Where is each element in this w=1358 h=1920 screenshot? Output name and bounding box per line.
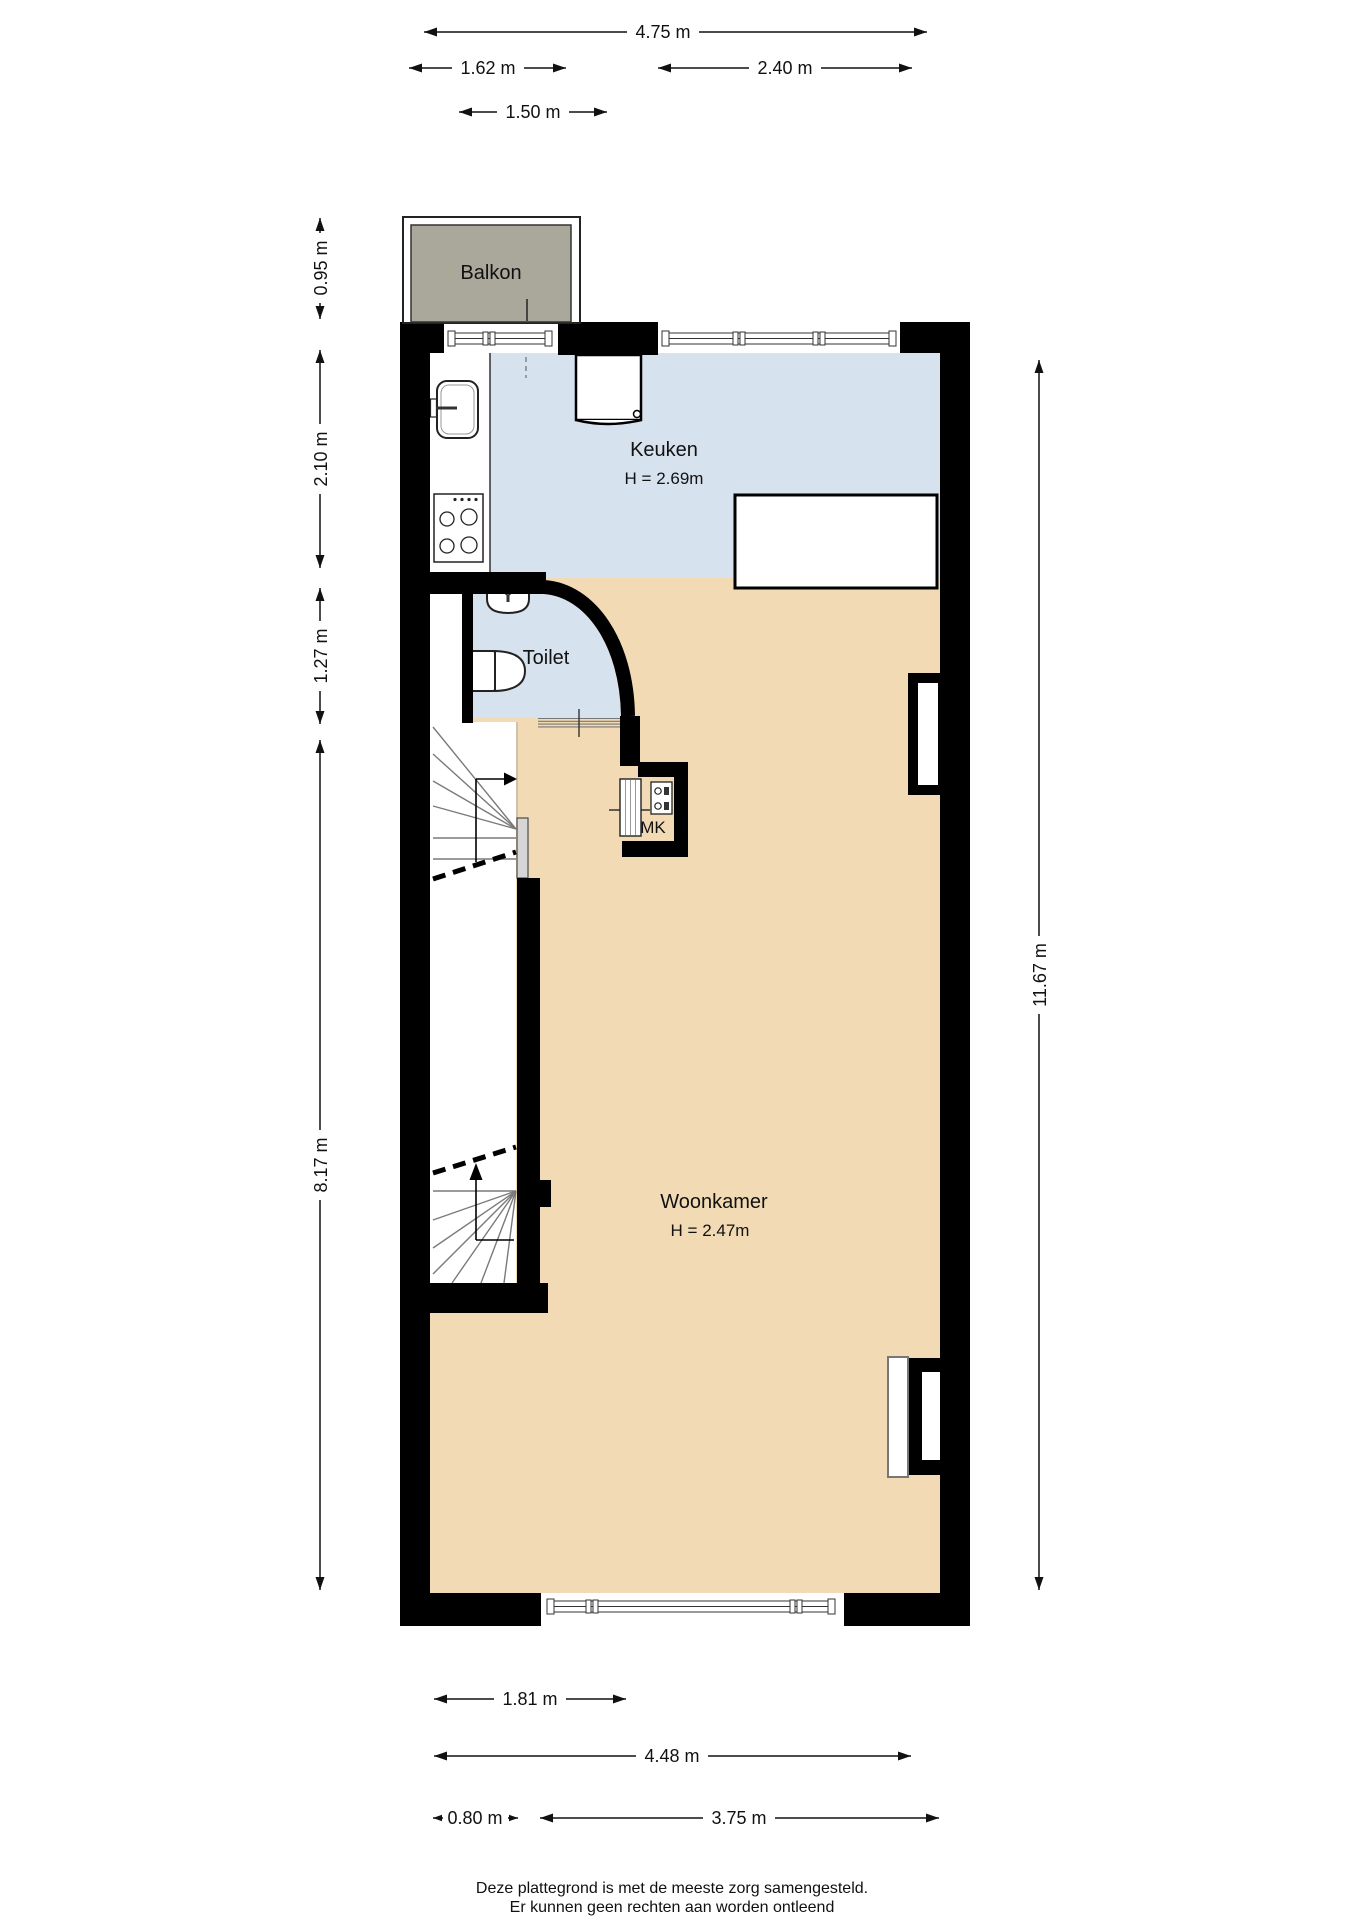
dimension-label: 0.80 m: [447, 1808, 502, 1828]
radiator: [888, 1357, 908, 1477]
wall-niche-upper: [908, 673, 940, 795]
wall-segment: [622, 841, 688, 857]
dimension-top-total: 4.75 m: [424, 21, 927, 43]
wall-segment: [430, 572, 546, 594]
room-height-keuken: H = 2.69m: [625, 469, 704, 488]
room-label-balkon: Balkon: [460, 262, 521, 284]
stove-icon: [434, 494, 483, 562]
wall-segment: [400, 322, 430, 1626]
dimension-bottom-stair: 1.81 m: [434, 1688, 626, 1710]
mk-door-icon: [620, 779, 641, 836]
dimension-label: 0.95 m: [311, 240, 331, 295]
dimension-label: 4.48 m: [644, 1746, 699, 1766]
wall-segment: [517, 1180, 551, 1207]
floor-plan-page: Balkon Keuken H = 2.69m Toilet MK Woonka…: [0, 0, 1358, 1920]
dimension-top-window: 2.40 m: [658, 57, 912, 79]
dimension-label: 2.40 m: [757, 58, 812, 78]
dimension-label: 4.75 m: [635, 22, 690, 42]
wall-segment: [400, 1283, 548, 1313]
dimension-right-total: 11.67 m: [1028, 360, 1050, 1590]
dimension-left-kitchen: 2.10 m: [309, 350, 331, 568]
room-height-woonkamer: H = 2.47m: [671, 1221, 750, 1240]
wall-niche-lower: [908, 1358, 940, 1475]
window-top-left: [444, 322, 558, 353]
wall-segment: [558, 322, 658, 355]
dimension-label: 1.27 m: [311, 628, 331, 683]
wall-segment: [620, 716, 640, 766]
dimension-bottom-small: 0.80 m: [433, 1808, 518, 1829]
dimension-label: 2.10 m: [311, 431, 331, 486]
dimension-label: 8.17 m: [311, 1137, 331, 1192]
dimension-label: 11.67 m: [1030, 943, 1050, 1007]
room-label-toilet: Toilet: [523, 647, 570, 669]
toilet-icon: [471, 651, 525, 691]
dimension-bottom-living: 3.75 m: [540, 1807, 939, 1829]
wall-segment: [844, 1593, 970, 1626]
window-top-right: [658, 322, 900, 353]
wall-segment: [462, 594, 473, 723]
dimension-label: 1.50 m: [505, 102, 560, 122]
wall-segment: [400, 322, 444, 353]
dimension-left-living: 8.17 m: [309, 740, 331, 1590]
room-label-woonkamer: Woonkamer: [660, 1191, 768, 1213]
floor-plan: Balkon Keuken H = 2.69m Toilet MK Woonka…: [0, 0, 1358, 1920]
dimension-left-toilet: 1.27 m: [309, 588, 331, 724]
disclaimer: Deze plattegrond is met de meeste zorg s…: [476, 1880, 868, 1916]
dimension-left-balcony: 0.95 m: [309, 218, 331, 319]
dimension-label: 1.62 m: [460, 58, 515, 78]
faucet-icon: [431, 399, 437, 417]
disclaimer-line-2: Er kunnen geen rechten aan worden ontlee…: [510, 1899, 835, 1916]
window-bottom: [541, 1593, 844, 1626]
meter-box-icon: [651, 782, 672, 814]
room-label-mk: MK: [640, 818, 666, 837]
wall-segment: [940, 322, 970, 1626]
kitchen-counter-block: [735, 495, 937, 588]
dimension-top-balcony-width: 1.62 m: [409, 57, 566, 79]
dimension-label: 1.81 m: [502, 1689, 557, 1709]
dimension-bottom-total: 4.48 m: [434, 1745, 911, 1767]
room-label-keuken: Keuken: [630, 439, 698, 461]
disclaimer-line-1: Deze plattegrond is met de meeste zorg s…: [476, 1880, 868, 1897]
dimension-label: 3.75 m: [711, 1808, 766, 1828]
dimension-top-door: 1.50 m: [459, 101, 607, 123]
stair-door-icon: [517, 818, 528, 878]
wall-segment: [400, 1593, 541, 1626]
wall-segment: [517, 878, 540, 1283]
